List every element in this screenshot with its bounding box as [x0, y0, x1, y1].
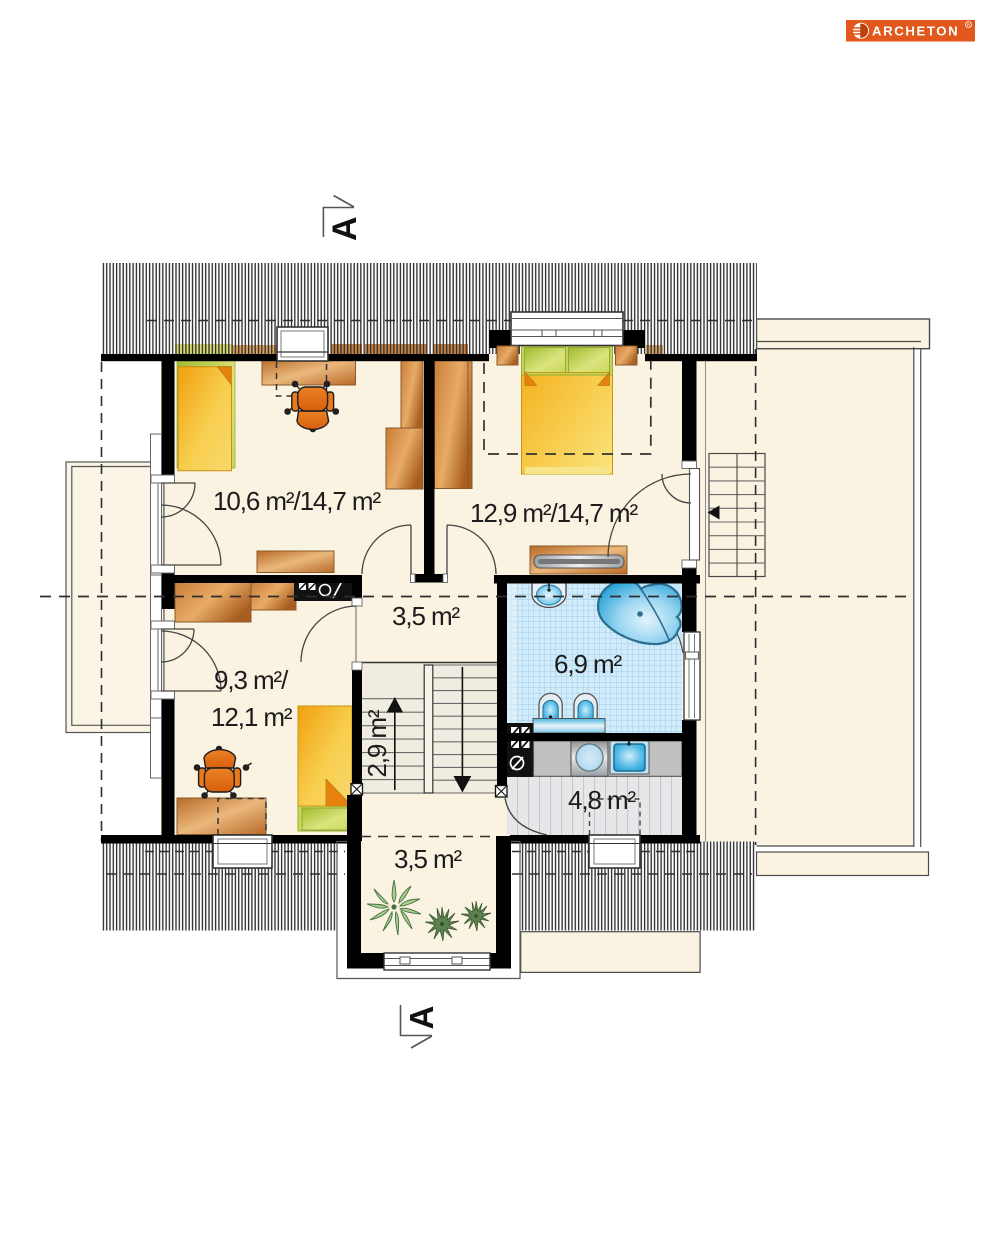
svg-text:9,3 m²/: 9,3 m²/ — [214, 665, 289, 695]
svg-text:4,8 m²: 4,8 m² — [568, 785, 637, 815]
svg-text:2,9 m²: 2,9 m² — [362, 709, 392, 778]
svg-text:12,1 m²: 12,1 m² — [211, 702, 293, 732]
svg-text:6,9 m²: 6,9 m² — [554, 649, 623, 679]
svg-text:ARCHETON: ARCHETON — [872, 23, 959, 38]
svg-text:A: A — [326, 216, 364, 241]
svg-text:10,6 m²/14,7 m²: 10,6 m²/14,7 m² — [213, 486, 381, 516]
svg-text:3,5 m²: 3,5 m² — [394, 844, 463, 874]
svg-text:A: A — [403, 1006, 440, 1030]
svg-text:3,5 m²: 3,5 m² — [392, 601, 461, 631]
svg-text:12,9 m²/14,7 m²: 12,9 m²/14,7 m² — [470, 498, 638, 528]
